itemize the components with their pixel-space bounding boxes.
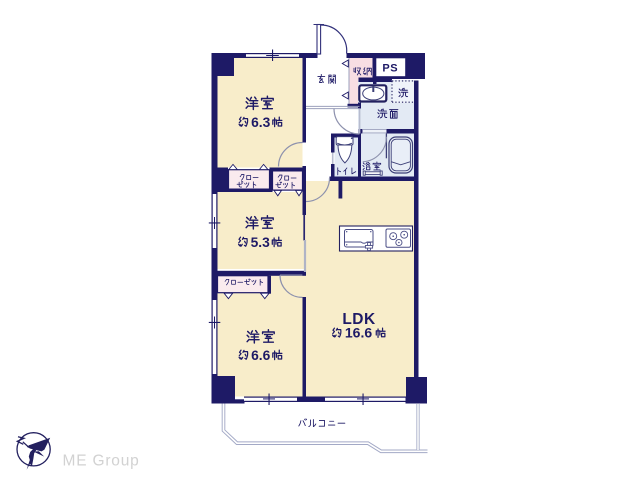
svg-text:PS: PS	[382, 63, 398, 75]
svg-text:ME Group: ME Group	[63, 453, 140, 470]
svg-text:16.6: 16.6	[345, 324, 372, 340]
svg-text:5.3: 5.3	[251, 235, 271, 250]
svg-text:6.3: 6.3	[251, 115, 271, 130]
svg-text:6.6: 6.6	[251, 348, 271, 363]
